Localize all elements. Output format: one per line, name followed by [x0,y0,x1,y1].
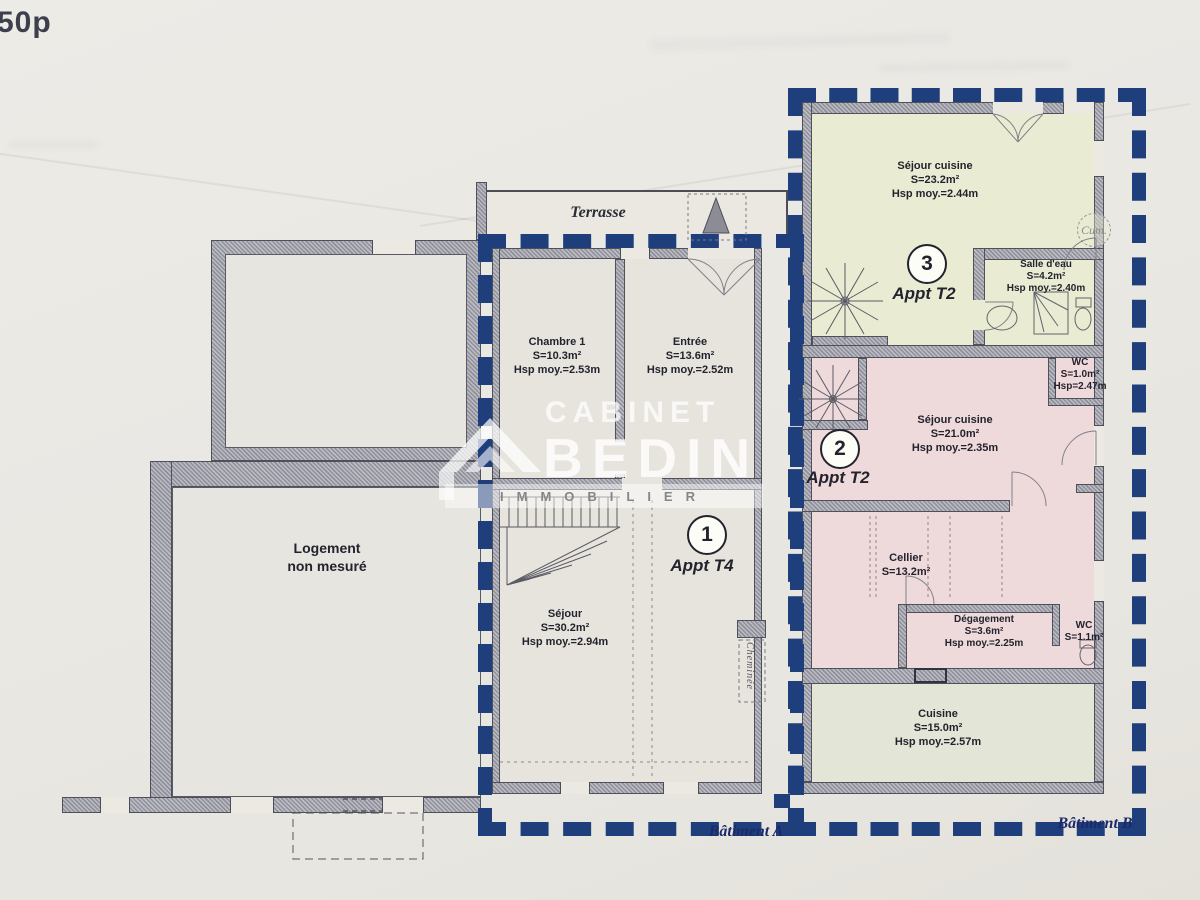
label-cuisine: Cuisine S=15.0m² Hsp moy.=2.57m [895,708,981,749]
wall-segment [150,461,172,813]
appt3-type-label: Appt T2 [892,284,955,304]
wall-segment [476,182,487,240]
ink-bleed-smudge [8,140,98,149]
appt1-type-label: Appt T4 [670,556,733,576]
wall-segment [150,461,481,487]
appt2-type-label: Appt T2 [806,468,869,488]
appt2-number-badge: 2 [820,429,860,469]
page-corner-note: 50p [0,6,52,40]
label-wc-rdc: WC S=1.1m² [1065,620,1104,644]
room-fill-upper-left [225,254,467,448]
batiment-b-label: Bâtiment B [1057,815,1132,833]
label-sejour-cuisine-appt3: Séjour cuisine S=23.2m² Hsp moy.=2.44m [892,160,978,201]
window-opening [382,797,424,813]
window-opening [372,240,416,254]
appt3-number-badge: 3 [907,244,947,284]
room-fill-logement [172,487,481,797]
terrasse-edge-line [487,190,788,192]
label-sejour-t4: Séjour S=30.2m² Hsp moy.=2.94m [522,608,608,649]
label-degagement: Dégagement S=3.6m² Hsp moy.=2.25m [945,614,1023,650]
floor-plan-canvas: 50p [0,0,1200,900]
boundary-joint [774,794,790,808]
cheminee-label: Cheminée [744,642,755,702]
appt1-number-badge: 1 [687,515,727,555]
label-cellier: Cellier S=13.2m² [882,552,931,580]
ink-bleed-smudge [880,60,1070,72]
terrasse-floor [487,192,787,238]
label-sejour-cuisine-appt2: Séjour cuisine S=21.0m² Hsp moy.=2.35m [912,414,998,455]
terrasse-label: Terrasse [570,204,625,222]
ink-bleed-smudge [650,32,950,51]
label-entree: Entrée S=13.6m² Hsp moy.=2.52m [647,336,733,377]
label-chambre1: Chambre 1 S=10.3m² Hsp moy.=2.53m [514,336,600,377]
water-heater-symbol: Cum. [1077,213,1111,247]
paper-crease [0,150,535,230]
batiment-a-label: Bâtiment A [709,823,784,841]
label-salle-eau: Salle d'eau S=4.2m² Hsp moy.=2.40m [1007,259,1085,295]
water-heater-label: Cum. [1081,223,1107,238]
window-opening [100,797,130,813]
label-wc-appt2: WC S=1.0m² Hsp=2.47m [1053,357,1106,393]
window-opening [230,797,274,813]
annex-dashed-outline [293,813,423,859]
label-logement: Logement non mesuré [287,540,366,575]
boundary-appt-t4 [478,234,804,836]
